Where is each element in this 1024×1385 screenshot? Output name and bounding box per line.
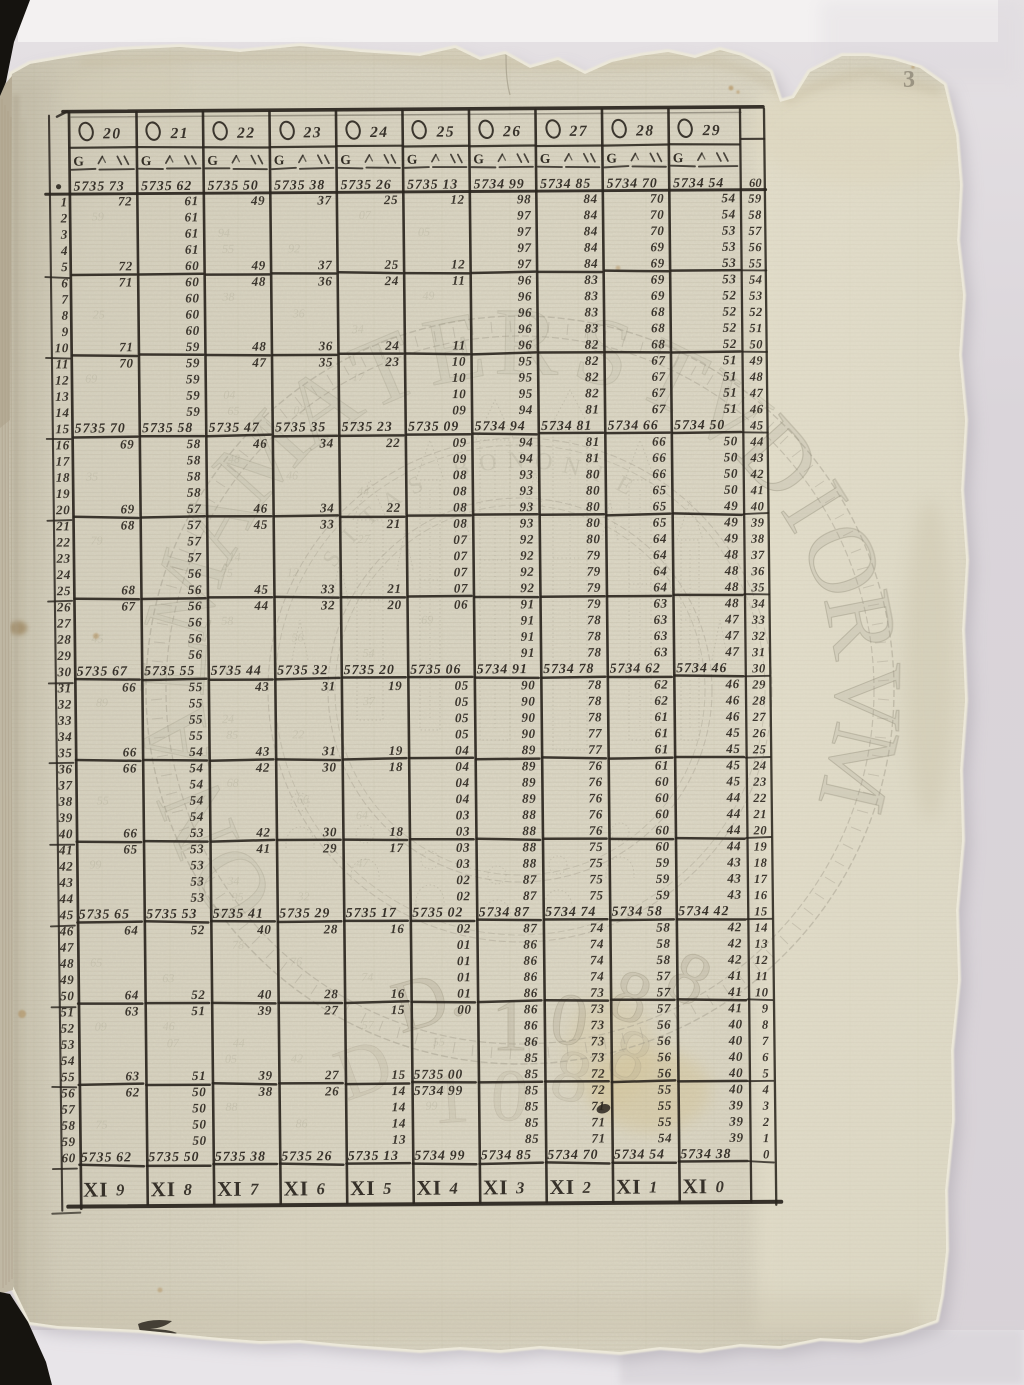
svg-text:48: 48 — [723, 547, 738, 562]
svg-text:81: 81 — [586, 434, 600, 449]
svg-text:5734 62: 5734 62 — [610, 660, 661, 675]
svg-text:64: 64 — [125, 987, 139, 1002]
svg-text:G: G — [407, 152, 418, 167]
svg-text:36: 36 — [57, 761, 72, 776]
svg-text:59: 59 — [748, 192, 762, 206]
svg-text:67: 67 — [651, 353, 665, 368]
svg-text:19: 19 — [388, 678, 402, 693]
svg-text:08: 08 — [453, 467, 467, 482]
svg-text:10: 10 — [452, 386, 466, 401]
svg-text:33: 33 — [320, 581, 335, 596]
svg-text:36: 36 — [292, 306, 305, 320]
svg-text:52: 52 — [722, 304, 736, 319]
svg-text:17: 17 — [352, 370, 365, 384]
svg-text:98: 98 — [517, 191, 531, 206]
svg-text:91: 91 — [521, 629, 535, 644]
svg-text:55: 55 — [189, 728, 203, 743]
svg-text:5735 47: 5735 47 — [209, 420, 260, 435]
svg-text:39: 39 — [257, 1068, 272, 1083]
svg-text:54: 54 — [749, 273, 763, 287]
svg-text:35: 35 — [85, 469, 98, 483]
svg-text:5734 50: 5734 50 — [674, 417, 725, 432]
svg-text:75: 75 — [589, 871, 603, 886]
svg-text:22: 22 — [385, 435, 400, 450]
svg-text:93: 93 — [519, 483, 533, 498]
svg-text:84: 84 — [584, 223, 598, 238]
svg-text:92: 92 — [520, 580, 534, 595]
svg-text:25: 25 — [752, 742, 767, 756]
svg-text:88: 88 — [522, 839, 536, 854]
svg-text:87: 87 — [523, 872, 537, 887]
svg-text:66: 66 — [123, 825, 137, 840]
svg-text:91: 91 — [521, 645, 535, 660]
svg-text:07: 07 — [453, 532, 467, 547]
svg-text:85: 85 — [524, 1066, 538, 1081]
svg-text:5734 85: 5734 85 — [481, 1147, 532, 1162]
svg-text:56: 56 — [188, 566, 202, 581]
svg-text:51: 51 — [60, 1004, 74, 1019]
svg-text:44: 44 — [357, 484, 369, 498]
svg-text:2: 2 — [60, 211, 68, 226]
svg-text:52: 52 — [191, 987, 205, 1002]
svg-text:41: 41 — [255, 841, 270, 856]
svg-text:6: 6 — [762, 1050, 769, 1064]
svg-text:59: 59 — [186, 404, 200, 419]
svg-text:28: 28 — [323, 986, 338, 1001]
svg-text:G: G — [340, 152, 351, 167]
svg-text:75: 75 — [221, 566, 233, 580]
svg-text:34: 34 — [751, 597, 766, 611]
svg-text:46: 46 — [253, 501, 268, 516]
svg-text:35: 35 — [318, 354, 333, 369]
svg-text:48: 48 — [251, 339, 266, 354]
svg-text:90: 90 — [521, 677, 535, 692]
svg-text:75: 75 — [589, 839, 603, 854]
svg-text:63: 63 — [125, 1068, 139, 1083]
svg-text:51: 51 — [191, 1003, 205, 1018]
svg-text:69: 69 — [650, 255, 664, 270]
svg-text:33: 33 — [57, 713, 72, 728]
svg-text:55: 55 — [658, 1082, 672, 1097]
svg-text:70: 70 — [119, 355, 133, 370]
svg-text:45: 45 — [253, 517, 268, 532]
svg-text:44: 44 — [749, 435, 764, 449]
svg-text:43: 43 — [254, 679, 269, 694]
svg-text:25: 25 — [93, 307, 105, 321]
svg-text:51: 51 — [723, 368, 737, 383]
svg-text:53: 53 — [190, 874, 204, 889]
svg-text:56: 56 — [749, 240, 763, 254]
svg-text:88: 88 — [522, 807, 536, 822]
svg-text:58: 58 — [187, 452, 201, 467]
svg-text:24: 24 — [384, 273, 399, 288]
svg-text:44: 44 — [233, 1036, 245, 1050]
svg-text:72: 72 — [118, 193, 132, 208]
svg-text:5735 73: 5735 73 — [74, 178, 125, 193]
svg-text:21: 21 — [752, 807, 767, 821]
svg-text:02: 02 — [456, 888, 470, 903]
svg-text:31: 31 — [321, 678, 336, 693]
svg-text:95: 95 — [518, 369, 532, 384]
svg-text:5734 94: 5734 94 — [475, 418, 526, 433]
svg-text:5735 38: 5735 38 — [274, 177, 325, 192]
svg-text:5735 29: 5735 29 — [279, 905, 330, 920]
svg-text:61: 61 — [185, 209, 199, 224]
svg-text:52: 52 — [60, 1021, 74, 1036]
svg-text:5735 58: 5735 58 — [142, 420, 193, 435]
svg-text:88: 88 — [225, 1100, 237, 1114]
svg-text:5734 58: 5734 58 — [612, 903, 663, 918]
svg-text:86: 86 — [523, 953, 537, 968]
svg-text:96: 96 — [518, 272, 532, 287]
svg-text:7: 7 — [61, 292, 68, 307]
svg-text:XI: XI — [284, 1176, 310, 1200]
svg-text:57: 57 — [61, 1102, 75, 1117]
svg-text:22: 22 — [55, 535, 70, 550]
svg-text:44: 44 — [726, 822, 741, 837]
svg-text:19: 19 — [56, 486, 70, 501]
svg-text:88: 88 — [523, 855, 537, 870]
svg-text:27: 27 — [323, 1002, 338, 1017]
svg-text:47: 47 — [251, 355, 266, 370]
svg-text:63: 63 — [653, 596, 667, 611]
svg-text:79: 79 — [587, 580, 601, 595]
svg-text:86: 86 — [524, 969, 538, 984]
svg-text:54: 54 — [189, 760, 203, 775]
svg-text:94: 94 — [519, 450, 533, 465]
svg-text:54: 54 — [190, 809, 204, 824]
svg-text:XI: XI — [83, 1177, 109, 1201]
svg-text:07: 07 — [454, 564, 468, 579]
svg-text:92: 92 — [520, 531, 534, 546]
svg-text:18: 18 — [389, 824, 403, 839]
svg-text:07: 07 — [453, 548, 467, 563]
svg-text:32: 32 — [320, 597, 335, 612]
svg-text:61: 61 — [654, 725, 668, 740]
svg-text:60: 60 — [185, 307, 199, 322]
svg-text:56: 56 — [188, 582, 202, 597]
svg-text:17: 17 — [56, 454, 70, 469]
svg-text:66: 66 — [123, 760, 137, 775]
svg-text:04: 04 — [455, 742, 469, 757]
svg-text:5734 54: 5734 54 — [614, 1146, 665, 1161]
svg-text:1: 1 — [649, 1177, 657, 1196]
svg-text:54: 54 — [658, 1130, 672, 1145]
svg-text:74: 74 — [590, 969, 604, 984]
svg-text:68: 68 — [651, 336, 665, 351]
svg-text:23: 23 — [384, 354, 399, 369]
svg-text:49: 49 — [723, 498, 738, 513]
svg-text:67: 67 — [652, 401, 666, 416]
svg-text:41: 41 — [727, 1000, 742, 1015]
svg-text:72: 72 — [591, 1066, 605, 1081]
svg-text:54: 54 — [722, 206, 736, 221]
svg-text:60: 60 — [655, 839, 669, 854]
svg-text:09: 09 — [453, 451, 467, 466]
svg-text:22: 22 — [386, 500, 401, 515]
svg-text:45: 45 — [725, 773, 740, 788]
svg-text:53: 53 — [722, 271, 736, 286]
svg-text:20: 20 — [55, 502, 70, 517]
svg-text:56: 56 — [188, 647, 202, 662]
svg-text:43: 43 — [726, 854, 741, 869]
svg-text:64: 64 — [653, 563, 667, 578]
svg-text:39: 39 — [257, 1003, 272, 1018]
svg-text:31: 31 — [321, 743, 336, 758]
svg-text:59: 59 — [656, 887, 670, 902]
svg-text:32: 32 — [751, 629, 766, 643]
svg-text:XI: XI — [550, 1175, 576, 1199]
svg-text:5735 62: 5735 62 — [141, 178, 192, 193]
svg-text:96: 96 — [518, 337, 532, 352]
svg-text:04: 04 — [456, 791, 470, 806]
svg-text:5: 5 — [762, 1066, 769, 1080]
svg-text:63: 63 — [654, 628, 668, 643]
svg-text:62: 62 — [126, 1084, 140, 1099]
svg-text:11: 11 — [56, 356, 70, 371]
svg-text:86: 86 — [524, 1017, 538, 1032]
svg-text:5735 53: 5735 53 — [146, 906, 197, 921]
svg-text:73: 73 — [591, 1033, 605, 1048]
svg-text:3: 3 — [60, 227, 68, 242]
svg-text:5734 91: 5734 91 — [477, 661, 528, 676]
svg-text:61: 61 — [655, 758, 669, 773]
svg-text:70: 70 — [650, 207, 664, 222]
svg-text:0: 0 — [763, 1147, 770, 1161]
svg-text:31: 31 — [57, 680, 72, 695]
svg-text:5734 66: 5734 66 — [608, 417, 659, 432]
svg-text:78: 78 — [587, 645, 601, 660]
svg-text:02: 02 — [457, 921, 471, 936]
svg-text:94: 94 — [218, 226, 230, 240]
svg-text:47: 47 — [59, 940, 74, 955]
svg-text:22: 22 — [292, 727, 304, 741]
svg-text:27: 27 — [56, 616, 71, 631]
svg-text:20: 20 — [753, 823, 768, 837]
svg-text:87: 87 — [523, 920, 537, 935]
svg-text:97: 97 — [517, 224, 531, 239]
svg-text:10: 10 — [55, 340, 69, 355]
svg-text:29: 29 — [56, 648, 71, 663]
svg-text:20: 20 — [386, 597, 401, 612]
svg-text:15: 15 — [55, 421, 69, 436]
svg-text:37: 37 — [316, 192, 331, 207]
svg-text:23: 23 — [303, 124, 323, 141]
svg-text:5734 78: 5734 78 — [543, 661, 594, 676]
svg-text:39: 39 — [728, 1114, 743, 1129]
svg-text:5734 74: 5734 74 — [545, 904, 596, 919]
svg-text:70: 70 — [650, 191, 664, 206]
svg-text:5734 70: 5734 70 — [607, 175, 658, 190]
svg-text:44: 44 — [253, 598, 268, 613]
svg-text:66: 66 — [652, 466, 666, 481]
svg-text:10: 10 — [452, 354, 466, 369]
svg-text:5734 46: 5734 46 — [676, 660, 727, 675]
svg-text:11: 11 — [755, 969, 768, 983]
svg-text:45: 45 — [725, 741, 740, 756]
svg-text:57: 57 — [362, 1018, 375, 1032]
svg-text:65: 65 — [123, 841, 137, 856]
svg-text:97: 97 — [517, 256, 531, 271]
svg-text:19: 19 — [754, 840, 768, 854]
svg-text:78: 78 — [587, 628, 601, 643]
svg-text:45: 45 — [749, 418, 764, 432]
svg-text:05: 05 — [418, 225, 430, 239]
svg-text:69: 69 — [85, 371, 97, 385]
svg-text:58: 58 — [187, 485, 201, 500]
svg-text:55: 55 — [222, 242, 234, 256]
svg-text:71: 71 — [591, 1114, 605, 1129]
svg-text:80: 80 — [586, 515, 600, 530]
svg-text:52: 52 — [749, 305, 763, 319]
svg-text:85: 85 — [524, 1050, 538, 1065]
svg-text:88: 88 — [522, 823, 536, 838]
svg-text:42: 42 — [727, 952, 742, 967]
svg-text:7: 7 — [762, 1034, 769, 1048]
svg-text:55: 55 — [189, 695, 203, 710]
svg-text:73: 73 — [590, 1017, 604, 1032]
svg-text:7: 7 — [250, 1180, 259, 1199]
svg-text:01: 01 — [457, 969, 471, 984]
svg-text:55: 55 — [61, 1069, 75, 1084]
svg-text:48: 48 — [251, 274, 266, 289]
svg-text:04: 04 — [223, 388, 235, 402]
svg-text:94: 94 — [519, 434, 533, 449]
svg-text:93: 93 — [520, 499, 534, 514]
svg-text:07: 07 — [359, 208, 372, 222]
svg-text:95: 95 — [518, 353, 532, 368]
svg-text:59: 59 — [186, 355, 200, 370]
svg-text:5735 23: 5735 23 — [342, 419, 393, 434]
svg-text:63: 63 — [162, 971, 174, 985]
svg-text:01: 01 — [457, 937, 471, 952]
svg-text:76: 76 — [589, 790, 603, 805]
svg-text:43: 43 — [726, 887, 741, 902]
svg-text:09: 09 — [95, 1019, 107, 1033]
svg-text:40: 40 — [728, 1081, 743, 1096]
svg-text:22: 22 — [236, 125, 256, 142]
svg-text:46: 46 — [725, 692, 740, 707]
svg-text:8: 8 — [762, 1018, 769, 1032]
svg-text:24: 24 — [56, 567, 71, 582]
svg-text:22: 22 — [752, 791, 767, 805]
svg-text:6: 6 — [61, 275, 68, 290]
svg-text:14: 14 — [392, 1083, 406, 1098]
svg-text:34: 34 — [57, 729, 72, 744]
svg-text:57: 57 — [187, 533, 201, 548]
svg-text:XI: XI — [417, 1176, 443, 1200]
svg-text:44: 44 — [726, 806, 741, 821]
svg-text:18: 18 — [754, 856, 768, 870]
svg-text:XI: XI — [683, 1174, 709, 1198]
svg-text:83: 83 — [584, 288, 598, 303]
svg-text:42: 42 — [727, 935, 742, 950]
svg-text:69: 69 — [421, 613, 433, 627]
svg-text:06: 06 — [454, 597, 468, 612]
svg-text:66: 66 — [123, 744, 137, 759]
svg-text:49: 49 — [723, 530, 738, 545]
svg-text:21: 21 — [55, 518, 70, 533]
svg-text:52: 52 — [723, 336, 737, 351]
svg-text:71: 71 — [119, 274, 133, 289]
svg-text:82: 82 — [585, 385, 599, 400]
svg-text:55: 55 — [433, 1035, 445, 1049]
svg-text:54: 54 — [363, 646, 375, 660]
svg-text:5734 38: 5734 38 — [680, 1146, 731, 1161]
svg-text:49: 49 — [250, 258, 265, 273]
svg-text:59: 59 — [656, 855, 670, 870]
svg-text:83: 83 — [584, 304, 598, 319]
svg-text:5734 87: 5734 87 — [479, 904, 530, 919]
svg-text:83: 83 — [584, 272, 598, 287]
svg-text:XI: XI — [217, 1177, 243, 1201]
svg-text:57: 57 — [657, 984, 671, 999]
svg-text:5735 26: 5735 26 — [281, 1148, 332, 1163]
svg-text:59: 59 — [656, 871, 670, 886]
svg-text:16: 16 — [56, 437, 70, 452]
svg-text:69: 69 — [651, 272, 665, 287]
svg-text:52: 52 — [723, 320, 737, 335]
svg-text:49: 49 — [723, 514, 738, 529]
svg-text:80: 80 — [586, 499, 600, 514]
svg-text:O: O — [534, 448, 554, 476]
svg-text:24: 24 — [752, 759, 767, 773]
svg-text:55: 55 — [658, 1114, 672, 1129]
svg-text:87: 87 — [523, 888, 537, 903]
svg-text:42: 42 — [727, 919, 742, 934]
svg-text:97: 97 — [517, 207, 531, 222]
svg-text:5735 06: 5735 06 — [410, 661, 461, 676]
svg-text:55: 55 — [97, 793, 109, 807]
svg-text:12: 12 — [55, 373, 69, 388]
svg-text:69: 69 — [120, 436, 134, 451]
svg-text:59: 59 — [186, 339, 200, 354]
svg-text:58: 58 — [748, 208, 762, 222]
svg-text:47: 47 — [724, 644, 739, 659]
svg-text:61: 61 — [185, 226, 199, 241]
svg-text:07: 07 — [454, 580, 468, 595]
svg-text:39: 39 — [728, 1097, 743, 1112]
svg-text:53: 53 — [190, 841, 204, 856]
svg-text:G: G — [274, 152, 285, 167]
svg-text:14: 14 — [392, 1115, 406, 1130]
svg-text:90: 90 — [521, 710, 535, 725]
svg-text:37: 37 — [317, 257, 332, 272]
svg-text:43: 43 — [726, 871, 741, 886]
svg-text:XI: XI — [616, 1175, 642, 1199]
svg-text:92: 92 — [288, 241, 300, 255]
svg-text:28: 28 — [635, 122, 655, 139]
svg-text:58: 58 — [61, 1118, 75, 1133]
svg-text:86: 86 — [524, 1034, 538, 1049]
svg-text:04: 04 — [455, 759, 469, 774]
svg-text:33: 33 — [751, 613, 766, 627]
svg-text:66: 66 — [297, 792, 309, 806]
svg-text:61: 61 — [655, 741, 669, 756]
svg-text:28: 28 — [323, 921, 338, 936]
svg-text:67: 67 — [651, 369, 665, 384]
svg-text:74: 74 — [590, 920, 604, 935]
svg-text:27: 27 — [569, 123, 589, 140]
svg-text:08: 08 — [453, 516, 467, 531]
svg-text:56: 56 — [657, 1033, 671, 1048]
svg-text:54: 54 — [721, 190, 735, 205]
svg-text:50: 50 — [724, 482, 738, 497]
svg-text:5735 02: 5735 02 — [412, 904, 463, 919]
svg-text:86: 86 — [523, 936, 537, 951]
svg-text:4: 4 — [449, 1179, 458, 1198]
svg-text:15: 15 — [391, 1002, 405, 1017]
